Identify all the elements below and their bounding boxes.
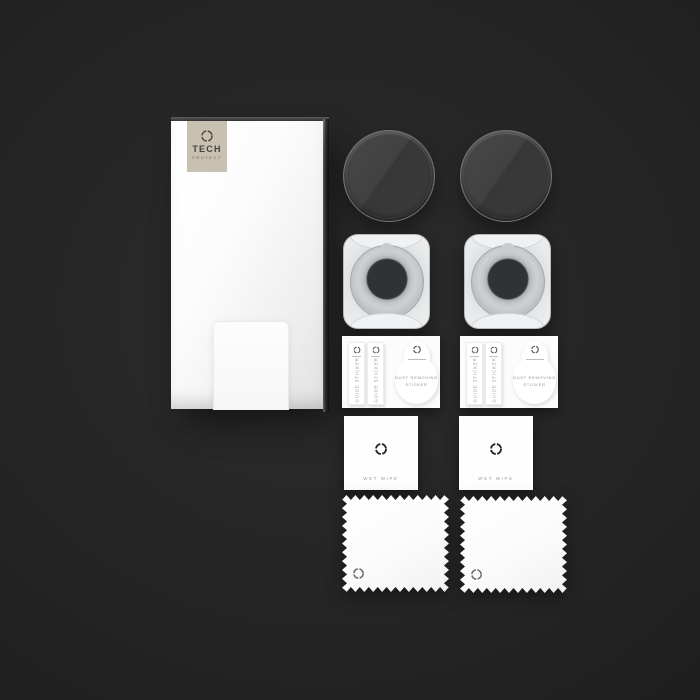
tech-protect-logo-icon — [200, 129, 214, 143]
sticker-sheet-2: GUIDE STICKER GUIDE STICKER DUST REMOVIN… — [460, 336, 558, 408]
frame-ring-and-hole — [350, 245, 424, 319]
box-front-face: TECH PROTECT — [171, 121, 323, 409]
guide-sticker-strip: GUIDE STICKER — [466, 342, 483, 405]
dust-sticker-label-line2: STICKER — [395, 383, 438, 387]
tech-protect-logo-icon — [490, 346, 498, 354]
microfiber-cloth-1 — [342, 495, 449, 592]
product-photo-scene: TECH PROTECT GUIDE STICKER GUIDE STICKER — [0, 0, 700, 700]
divider — [408, 359, 426, 360]
installation-frame-1 — [343, 234, 430, 329]
dust-sticker-label-line2: STICKER — [513, 383, 556, 387]
brand-name: TECH — [192, 145, 221, 154]
tech-protect-logo-icon — [470, 568, 483, 581]
tech-protect-logo-icon — [353, 346, 361, 354]
cloth-body — [460, 496, 567, 593]
dust-sticker-label-line1: DUST REMOVING — [513, 376, 556, 380]
dust-removing-sticker: DUST REMOVING STICKER — [395, 341, 438, 404]
wet-wipe-label: WET WIPE — [459, 476, 533, 481]
wet-wipe-sachet-1: WET WIPE — [344, 416, 418, 490]
guide-sticker-label: GUIDE STICKER — [354, 357, 359, 402]
guide-sticker-label: GUIDE STICKER — [472, 357, 477, 402]
tech-protect-logo-icon — [471, 346, 479, 354]
microfiber-cloth-2 — [460, 496, 567, 593]
lens-glass-protector-1 — [343, 130, 435, 222]
lens-glass-protector-2 — [460, 130, 552, 222]
guide-sticker-strip: GUIDE STICKER — [485, 342, 502, 405]
dust-sticker-label-line1: DUST REMOVING — [395, 376, 438, 380]
sticker-sheet-1: GUIDE STICKER GUIDE STICKER DUST REMOVIN… — [342, 336, 440, 408]
brand-subname: PROTECT — [192, 156, 222, 160]
brand-logo-plate: TECH PROTECT — [187, 121, 227, 172]
wet-wipe-label: WET WIPE — [344, 476, 418, 481]
tech-protect-logo-icon — [352, 567, 365, 580]
tech-protect-logo-icon — [489, 442, 503, 456]
sticker-shape-body — [395, 356, 438, 404]
tech-protect-logo-icon — [374, 442, 388, 456]
box-right-edge — [323, 119, 329, 412]
divider — [526, 359, 544, 360]
guide-sticker-strip: GUIDE STICKER — [367, 342, 384, 405]
box-inner-flap — [213, 321, 289, 410]
tech-protect-logo-icon — [530, 345, 539, 354]
installation-frame-2 — [464, 234, 551, 329]
wet-wipe-sachet-2: WET WIPE — [459, 416, 533, 490]
product-box: TECH PROTECT — [171, 117, 329, 413]
guide-sticker-label: GUIDE STICKER — [491, 357, 496, 402]
tech-protect-logo-icon — [412, 345, 421, 354]
frame-ring-and-hole — [471, 245, 545, 319]
cloth-body — [342, 495, 449, 592]
tech-protect-logo-icon — [372, 346, 380, 354]
guide-sticker-label: GUIDE STICKER — [373, 357, 378, 402]
guide-sticker-strip: GUIDE STICKER — [348, 342, 365, 405]
sticker-shape-body — [513, 356, 556, 404]
dust-removing-sticker: DUST REMOVING STICKER — [513, 341, 556, 404]
